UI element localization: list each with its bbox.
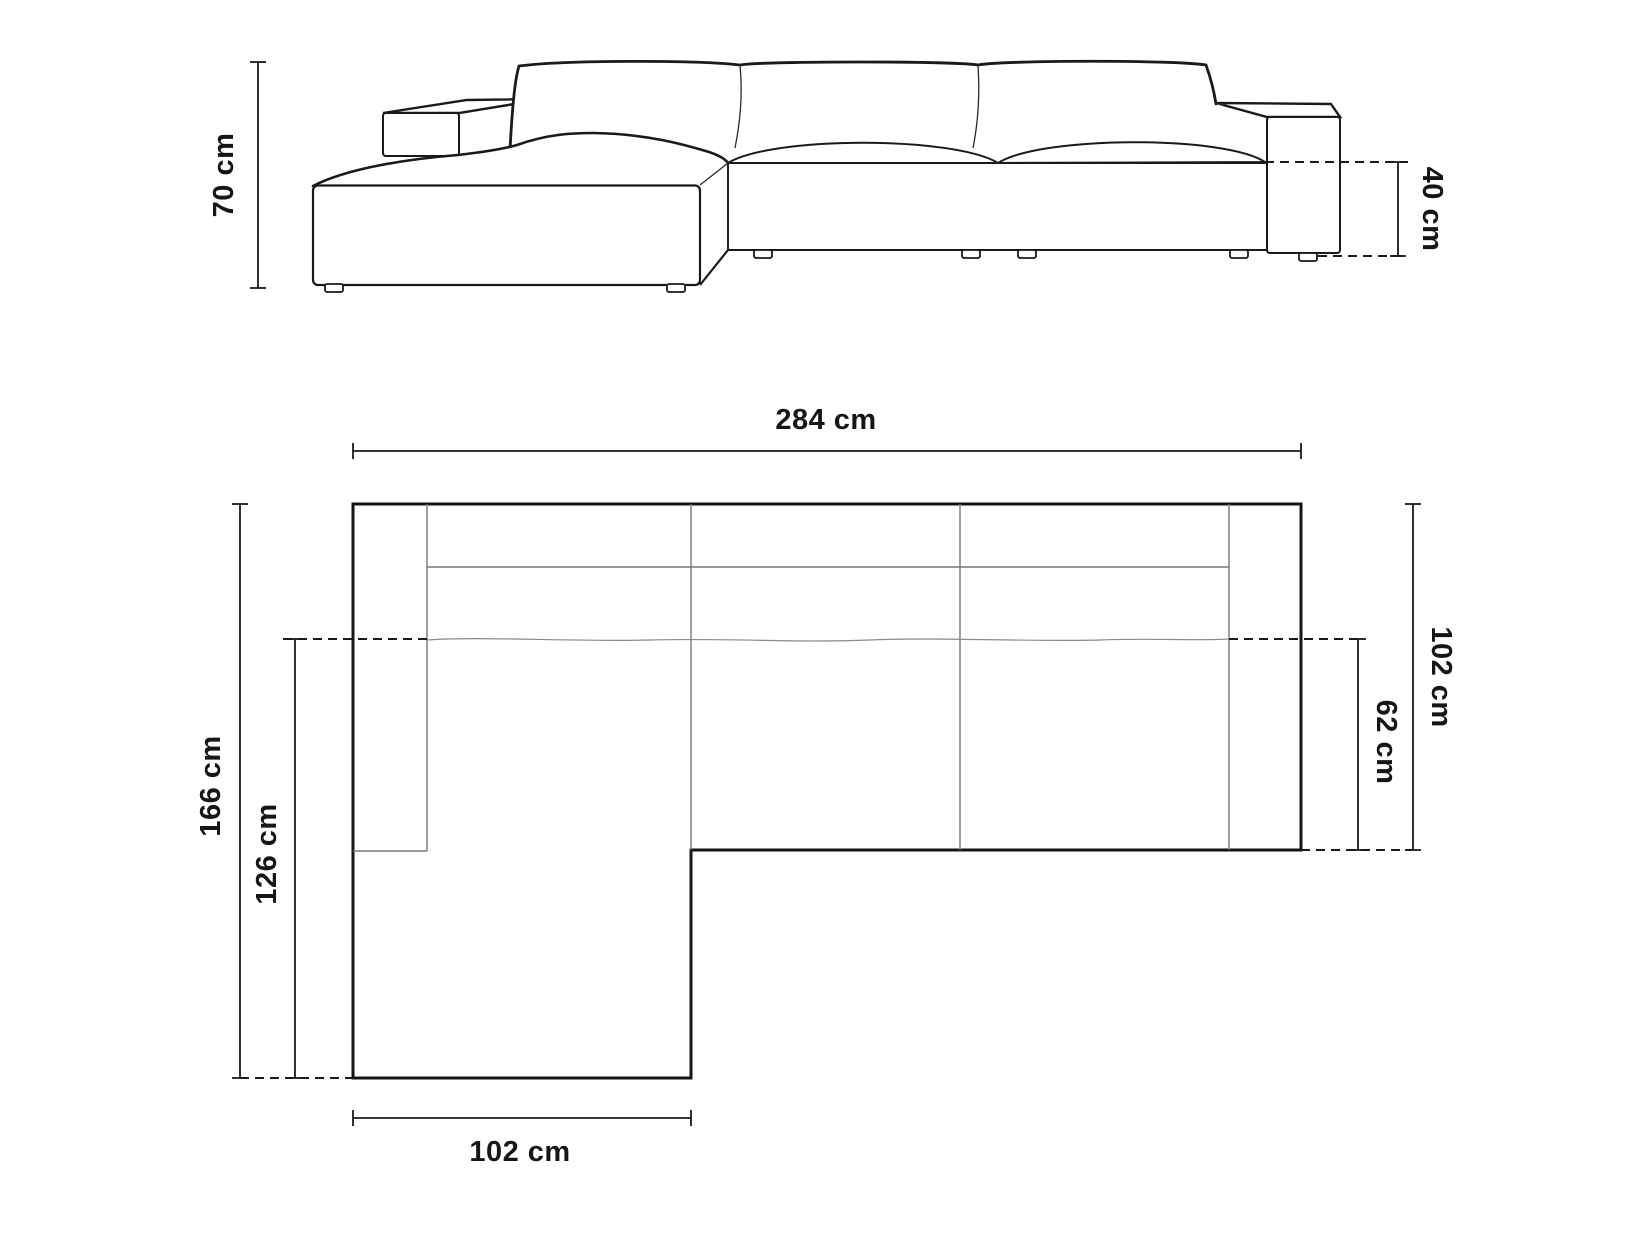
dim-width-284: 284 cm (353, 404, 1301, 459)
dim-depth-166: 166 cm (195, 504, 248, 1078)
dim-label-chaise-width: 102 cm (469, 1136, 570, 1168)
left-armrest-front-face (383, 113, 459, 156)
right-armrest-top-face (1216, 103, 1340, 117)
chaise-step-bottom-edge (700, 250, 728, 285)
dim-label-total-depth: 166 cm (195, 735, 227, 836)
sofa-foot (325, 284, 343, 292)
diagram-svg: 70 cm 40 cm 284 cm (0, 0, 1652, 1239)
sofa-foot (962, 250, 980, 258)
front-view: 70 cm 40 cm (208, 61, 1448, 292)
dim-label-chaise-length: 126 cm (251, 803, 283, 904)
chaise-section (313, 133, 728, 285)
sofa-dimension-diagram: 70 cm 40 cm 284 cm (0, 0, 1652, 1239)
dim-depth-102: 102 cm (1405, 504, 1457, 850)
seat-base-front-face (728, 163, 1267, 250)
plan-outline (353, 504, 1301, 1078)
dim-chaise-length-126: 126 cm (251, 639, 303, 1078)
sofa-foot (754, 250, 772, 258)
dim-label-total-height: 70 cm (208, 133, 240, 218)
sofa-foot (1018, 250, 1036, 258)
dim-label-seat-height: 40 cm (1416, 167, 1448, 252)
dim-label-body-depth: 102 cm (1425, 626, 1457, 727)
dim-seat-depth-62: 62 cm (1350, 639, 1402, 850)
dim-label-seat-depth: 62 cm (1370, 700, 1402, 785)
sofa-foot (1230, 250, 1248, 258)
top-view: 284 cm 166 cm (195, 404, 1457, 1168)
dim-height-70: 70 cm (208, 62, 266, 288)
sofa-foot (667, 284, 685, 292)
sofa-foot (1299, 253, 1317, 261)
right-armrest-front-face (1267, 117, 1340, 253)
dim-chaise-width-102: 102 cm (353, 1110, 691, 1168)
dim-label-overall-width: 284 cm (775, 404, 876, 436)
chaise-base-front-face (313, 186, 700, 286)
